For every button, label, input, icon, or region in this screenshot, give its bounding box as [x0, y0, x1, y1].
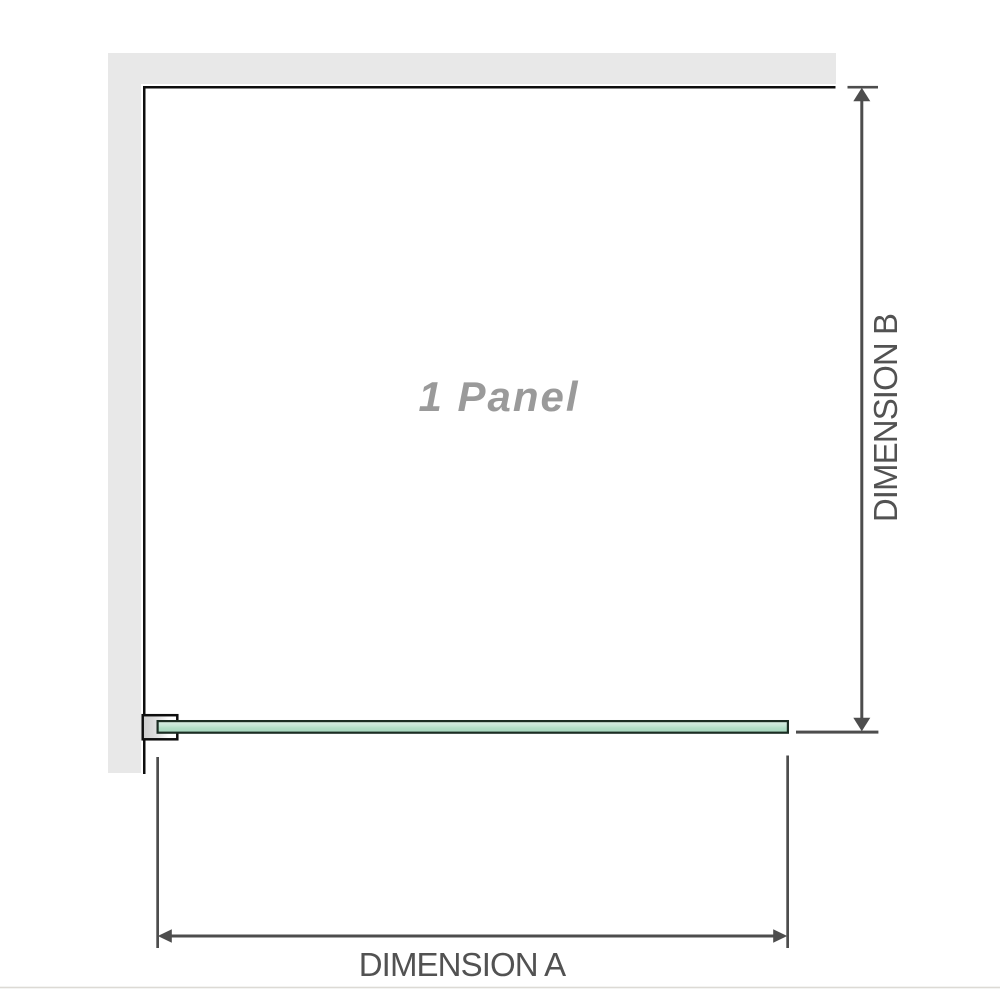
svg-text:DIMENSION A: DIMENSION A: [359, 946, 566, 983]
svg-text:1 Panel: 1 Panel: [418, 373, 579, 420]
svg-text:DIMENSION B: DIMENSION B: [867, 314, 904, 522]
